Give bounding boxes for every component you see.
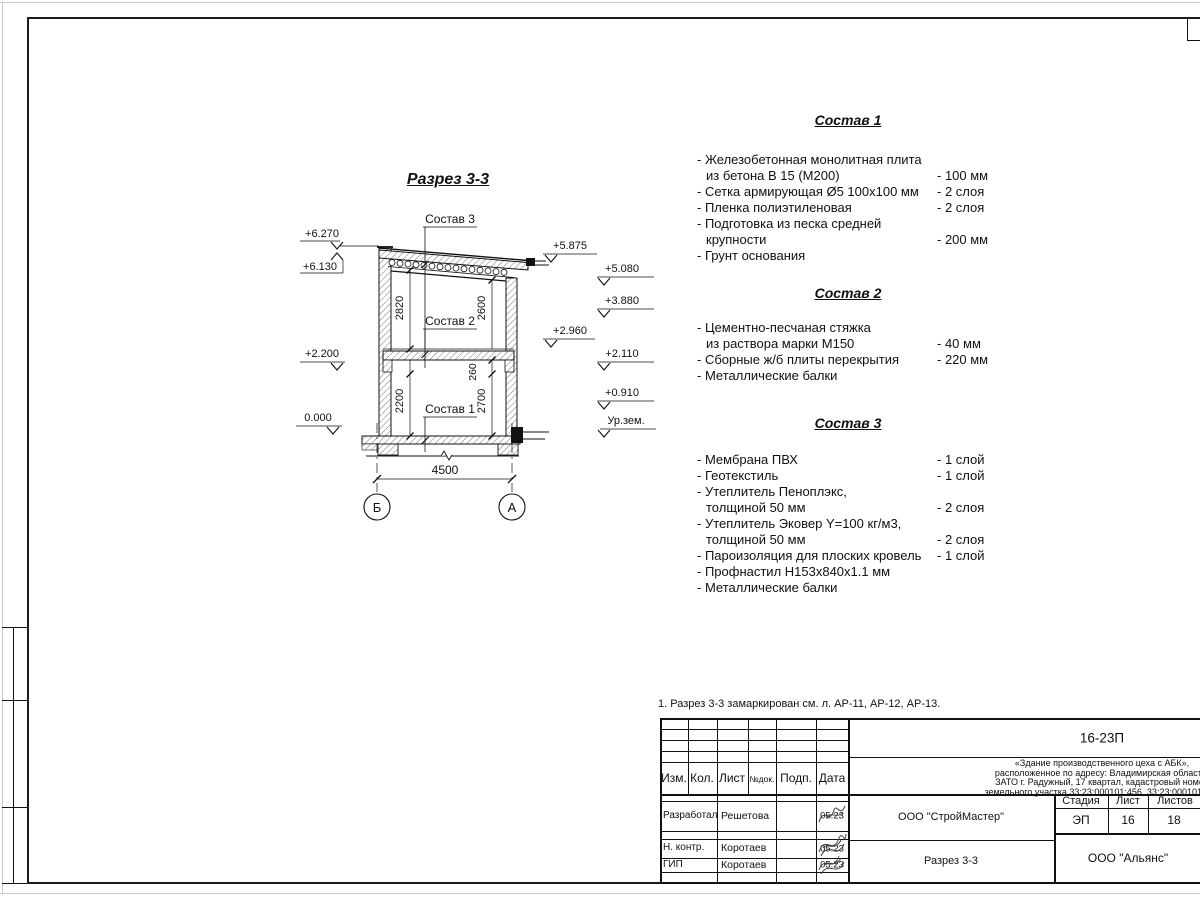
svg-text:Ур.зем.: Ур.зем.	[607, 415, 644, 427]
list-item: - Железобетонная монолитная плита из бет…	[697, 152, 999, 184]
sostav2-title: Состав 2	[697, 285, 999, 301]
tb-col-izm: Изм.	[661, 771, 687, 785]
svg-text:Состав 1: Состав 1	[425, 402, 475, 416]
tb-project-description: «Здание производственного цеха с АБК», р…	[952, 759, 1200, 797]
svg-text:Состав 3: Состав 3	[425, 212, 475, 226]
item-text: из бетона В 15 (М200)	[697, 168, 937, 184]
list-item: - Профнастил Н153х840х1.1 мм	[697, 564, 999, 580]
side-table-line	[2, 627, 27, 628]
title-block: Изм. Кол. Лист №док. Подп. Дата Разработ…	[660, 718, 1200, 884]
signatures	[817, 800, 848, 880]
item-value: - 2 слоя	[937, 200, 999, 216]
list-item: - Пароизоляция для плоских кровель - 1 с…	[697, 548, 999, 564]
corner-box-line	[1187, 40, 1200, 41]
svg-text:+6.130: +6.130	[303, 261, 337, 273]
list-item: - Пленка полиэтиленовая - 2 слоя	[697, 200, 999, 216]
tb-name: Коротаев	[721, 842, 766, 854]
item-text: - Подготовка из песка средней	[697, 216, 937, 232]
tb-border	[660, 882, 1200, 884]
svg-text:4500: 4500	[432, 463, 459, 477]
svg-text:+2.960: +2.960	[553, 325, 587, 337]
tb-sheet-label: Лист	[1116, 795, 1140, 807]
tb-sheet-title: Разрез 3-3	[924, 855, 978, 867]
dim-2200: 2200	[394, 389, 406, 413]
item-text: из раствора марки М150	[697, 336, 937, 352]
side-table-line	[2, 883, 27, 884]
elevation-5080: +5.080	[597, 263, 654, 285]
tb-client: ООО "Альянс"	[1088, 851, 1168, 865]
list-item: - Цементно-песчаная стяжка из раствора м…	[697, 320, 999, 352]
sheet-note: 1. Разрез 3-3 замаркирован см. л. АР-11,…	[658, 698, 940, 710]
list-item: - Утеплитель Пеноплэкс, толщиной 50 мм -…	[697, 484, 999, 516]
item-text: - Металлические балки	[697, 368, 937, 384]
svg-text:+0.910: +0.910	[605, 387, 639, 399]
elevation-2960: +2.960	[543, 325, 595, 347]
paper-edge-left	[2, 2, 3, 893]
elevation-0000: 0.000	[296, 412, 342, 434]
item-value: - 40 мм	[937, 336, 999, 352]
item-value: - 2 слоя	[937, 532, 999, 548]
paper-edge-bottom	[0, 893, 1200, 894]
tb-col-dok: №док.	[750, 774, 775, 784]
axis-bubble-left: Б	[364, 494, 390, 520]
tb-name: Коротаев	[721, 859, 766, 871]
list-item: - Сборные ж/б плиты перекрытия - 220 мм	[697, 352, 999, 368]
dim-2820: 2820	[394, 296, 406, 320]
svg-text:+5.080: +5.080	[605, 263, 639, 275]
tb-role: Разработал	[663, 810, 717, 821]
tb-col-list: Лист	[719, 771, 745, 785]
list-item: - Утеплитель Эковер Y=100 кг/м3, толщино…	[697, 516, 999, 548]
item-text: - Сетка армирующая Ø5 100х100 мм	[697, 184, 937, 200]
item-text: - Геотекстиль	[697, 468, 937, 484]
tb-line	[1054, 808, 1200, 809]
tb-line	[1054, 833, 1200, 835]
item-text: - Утеплитель Эковер Y=100 кг/м3,	[697, 516, 937, 532]
side-table-line	[2, 807, 27, 808]
item-text: толщиной 50 мм	[697, 500, 937, 516]
svg-text:+2.200: +2.200	[305, 348, 339, 360]
tb-line	[662, 762, 848, 763]
tb-stage-label: Стадия	[1062, 795, 1100, 807]
tb-sheets-label: Листов	[1157, 795, 1193, 807]
item-text: толщиной 50 мм	[697, 532, 937, 548]
item-value: - 1 слой	[937, 468, 999, 484]
item-text: - Мембрана ПВХ	[697, 452, 937, 468]
svg-text:Б: Б	[373, 500, 382, 515]
item-value: - 1 слой	[937, 548, 999, 564]
tb-doc-code: 16-23П	[1080, 731, 1124, 746]
tb-line	[848, 840, 1054, 841]
tb-line	[1108, 794, 1109, 833]
item-text: - Пленка полиэтиленовая	[697, 200, 937, 216]
sostav2-list: - Цементно-песчаная стяжка из раствора м…	[697, 320, 999, 384]
item-value: - 220 мм	[937, 352, 999, 368]
item-text: - Утеплитель Пеноплэкс,	[697, 484, 937, 500]
item-text: - Грунт основания	[697, 248, 937, 264]
elevation-2200: +2.200	[300, 348, 345, 370]
tb-line	[688, 720, 689, 794]
item-value: - 200 мм	[937, 232, 999, 248]
elevation-2110: +2.110	[597, 348, 654, 370]
list-item: - Металлические балки	[697, 580, 999, 596]
list-item: - Мембрана ПВХ - 1 слой	[697, 452, 999, 468]
list-item: - Подготовка из песка средней крупности …	[697, 216, 999, 248]
tb-col-data: Дата	[819, 771, 846, 785]
elevation-5875: +5.875	[543, 240, 597, 262]
left-wall	[377, 247, 393, 437]
tb-name: Решетова	[721, 810, 769, 822]
tb-col-podp: Подп.	[780, 771, 812, 785]
tb-sheet-number: 16	[1121, 813, 1134, 827]
item-text: крупности	[697, 232, 937, 248]
svg-text:+3.880: +3.880	[605, 295, 639, 307]
axis-bubble-right: А	[499, 494, 525, 520]
item-text: - Профнастил Н153х840х1.1 мм	[697, 564, 937, 580]
tb-line	[662, 751, 848, 752]
svg-text:А: А	[508, 500, 517, 515]
dim-2700: 2700	[476, 389, 488, 413]
section-drawing: 2820 2600 2200 260 2700 Состав 3 Состав …	[280, 160, 700, 540]
tb-col-kol: Кол.	[690, 771, 714, 785]
item-text: - Пароизоляция для плоских кровель	[697, 548, 937, 564]
item-value: - 1 слой	[937, 452, 999, 468]
elevation-6130: +6.130	[300, 253, 343, 273]
side-table-line	[13, 627, 14, 884]
corner-box-line	[1187, 17, 1188, 41]
sostav3-title: Состав 3	[697, 415, 999, 431]
list-item: - Грунт основания	[697, 248, 999, 264]
sostav3-list: - Мембрана ПВХ - 1 слой - Геотекстиль - …	[697, 452, 999, 596]
sostav1-list: - Железобетонная монолитная плита из бет…	[697, 152, 999, 264]
sostav1-title: Состав 1	[697, 112, 999, 128]
intermediate-slab	[383, 349, 514, 372]
tb-stage-value: ЭП	[1072, 813, 1089, 827]
tb-contractor: ООО "СтройМастер"	[898, 811, 1004, 823]
item-value: - 100 мм	[937, 168, 999, 184]
item-text: - Сборные ж/б плиты перекрытия	[697, 352, 937, 368]
item-text: - Железобетонная монолитная плита	[697, 152, 937, 168]
svg-text:+5.875: +5.875	[553, 240, 587, 252]
dim-2600: 2600	[476, 296, 488, 320]
tb-line	[848, 720, 850, 882]
svg-text:+6.270: +6.270	[305, 228, 339, 240]
dim-260: 260	[467, 363, 479, 381]
item-value: - 2 слоя	[937, 500, 999, 516]
list-item: - Металлические балки	[697, 368, 999, 384]
list-item: - Геотекстиль - 1 слой	[697, 468, 999, 484]
tb-line	[662, 740, 848, 741]
svg-text:0.000: 0.000	[304, 412, 332, 424]
item-text: - Цементно-песчаная стяжка	[697, 320, 937, 336]
svg-text:Состав 2: Состав 2	[425, 314, 475, 328]
side-table-line	[2, 700, 27, 701]
list-item: - Сетка армирующая Ø5 100х100 мм - 2 сло…	[697, 184, 999, 200]
tb-border	[660, 718, 1200, 720]
item-value: - 2 слоя	[937, 184, 999, 200]
paper-edge-top	[0, 2, 1200, 3]
elevation-6270: +6.270	[300, 228, 379, 249]
tb-sheets-total: 18	[1167, 813, 1180, 827]
item-text: - Металлические балки	[697, 580, 937, 596]
tb-line	[662, 729, 848, 730]
tb-line	[1148, 794, 1149, 833]
elevation-ground-level: Ур.зем.	[598, 415, 656, 437]
svg-text:+2.110: +2.110	[605, 348, 638, 360]
tb-role: Н. контр.	[663, 842, 704, 853]
elevation-3880: +3.880	[597, 295, 654, 317]
elevation-0910: +0.910	[597, 387, 654, 409]
drawing-sheet: Разрез 3-3	[0, 0, 1200, 900]
tb-role: ГИП	[663, 859, 683, 870]
